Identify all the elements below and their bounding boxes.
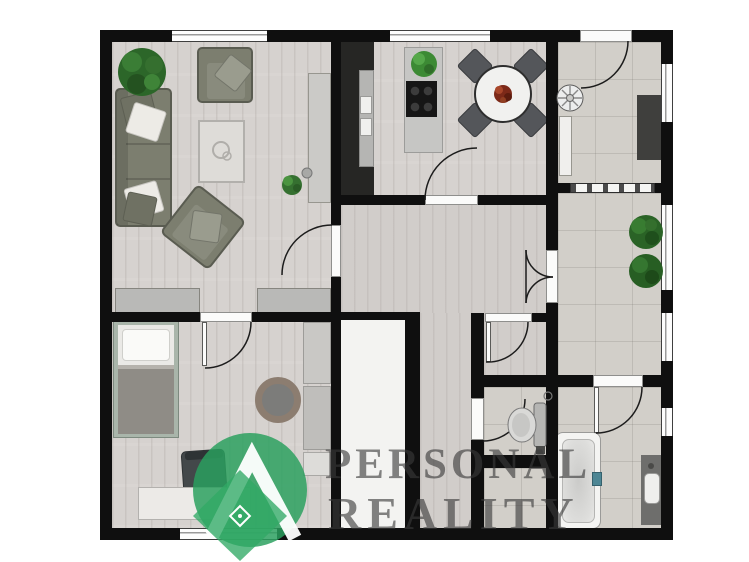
middle-room-floor bbox=[558, 193, 661, 387]
chest-left bbox=[115, 288, 200, 313]
wc-floor bbox=[484, 387, 546, 455]
closet-floor bbox=[341, 320, 405, 528]
wall-segment bbox=[112, 312, 200, 322]
window bbox=[180, 528, 277, 540]
wall-segment bbox=[661, 30, 673, 64]
armchair-top bbox=[197, 47, 253, 103]
wall-segment bbox=[277, 528, 673, 540]
kitchen-sink bbox=[360, 96, 372, 114]
door-opening bbox=[593, 375, 643, 387]
bed-pillow bbox=[122, 329, 170, 361]
door-opening bbox=[331, 225, 341, 277]
wall-segment bbox=[661, 290, 673, 313]
wall-segment bbox=[471, 455, 557, 468]
wall-segment bbox=[331, 277, 341, 528]
door-leaf bbox=[594, 387, 599, 433]
round-rug bbox=[255, 377, 301, 423]
sofa bbox=[115, 88, 172, 227]
wall-segment bbox=[252, 312, 331, 322]
wall-segment bbox=[661, 436, 673, 540]
window bbox=[661, 205, 673, 290]
wardrobe-lower bbox=[303, 386, 331, 450]
wall-segment bbox=[558, 183, 570, 193]
wall-segment bbox=[546, 303, 558, 528]
door-leaf bbox=[202, 322, 207, 366]
hallway-floor bbox=[341, 205, 546, 322]
wall-segment bbox=[100, 30, 112, 540]
entrance-door bbox=[580, 30, 632, 42]
door-opening bbox=[471, 398, 484, 440]
kitchen-sink bbox=[360, 118, 372, 136]
corridor-floor bbox=[420, 313, 471, 528]
wall-art-rug bbox=[198, 120, 245, 183]
sofa-cushion-line bbox=[126, 178, 170, 180]
double-door-opening bbox=[546, 250, 558, 303]
window bbox=[661, 408, 673, 436]
wall-segment bbox=[100, 528, 180, 540]
window bbox=[661, 64, 673, 122]
door-opening bbox=[425, 195, 478, 205]
wall-segment bbox=[661, 122, 673, 205]
wall-segment bbox=[478, 195, 546, 205]
wall-segment bbox=[546, 42, 558, 250]
storage-room-floor bbox=[484, 322, 546, 375]
wall-segment bbox=[331, 42, 341, 225]
wall-segment bbox=[471, 440, 484, 528]
armchair-pillow bbox=[189, 210, 223, 244]
bed-blanket bbox=[118, 365, 174, 434]
wall-segment bbox=[490, 30, 580, 42]
cooktop bbox=[406, 81, 437, 117]
wall-segment bbox=[341, 195, 425, 205]
wall-segment bbox=[471, 375, 557, 387]
entry-cabinet bbox=[559, 116, 572, 176]
desk-chair-back bbox=[185, 450, 223, 461]
door-leaf bbox=[486, 322, 491, 362]
floorplan-canvas: PERSONAL REALITY bbox=[0, 0, 749, 562]
window bbox=[661, 313, 673, 361]
wardrobe-shelf bbox=[303, 452, 331, 476]
glazed-partition bbox=[570, 183, 655, 193]
wall-segment bbox=[341, 312, 405, 320]
wall-segment bbox=[655, 183, 661, 193]
wall-segment bbox=[558, 375, 593, 387]
entry-dark-mat bbox=[637, 95, 663, 160]
wall-segment bbox=[405, 312, 420, 528]
bathtub-faucet bbox=[592, 472, 602, 486]
wall-segment bbox=[643, 375, 661, 387]
bed bbox=[113, 320, 179, 438]
wardrobe-upper bbox=[303, 322, 331, 384]
door-opening bbox=[485, 313, 532, 322]
door-opening bbox=[200, 312, 252, 322]
small-room-floor bbox=[484, 468, 546, 528]
wall-segment bbox=[267, 30, 390, 42]
sofa-pillow-olive bbox=[122, 191, 158, 227]
desk bbox=[138, 487, 251, 520]
window bbox=[172, 30, 267, 42]
bathtub-basin bbox=[562, 439, 595, 523]
wall-segment bbox=[532, 313, 546, 322]
dining-table bbox=[474, 65, 532, 123]
wall-segment bbox=[661, 361, 673, 408]
window bbox=[390, 30, 490, 42]
chest-right bbox=[257, 288, 331, 313]
washbasin bbox=[644, 473, 660, 504]
sofa-cushion-line bbox=[126, 143, 170, 145]
sideboard bbox=[308, 73, 331, 203]
